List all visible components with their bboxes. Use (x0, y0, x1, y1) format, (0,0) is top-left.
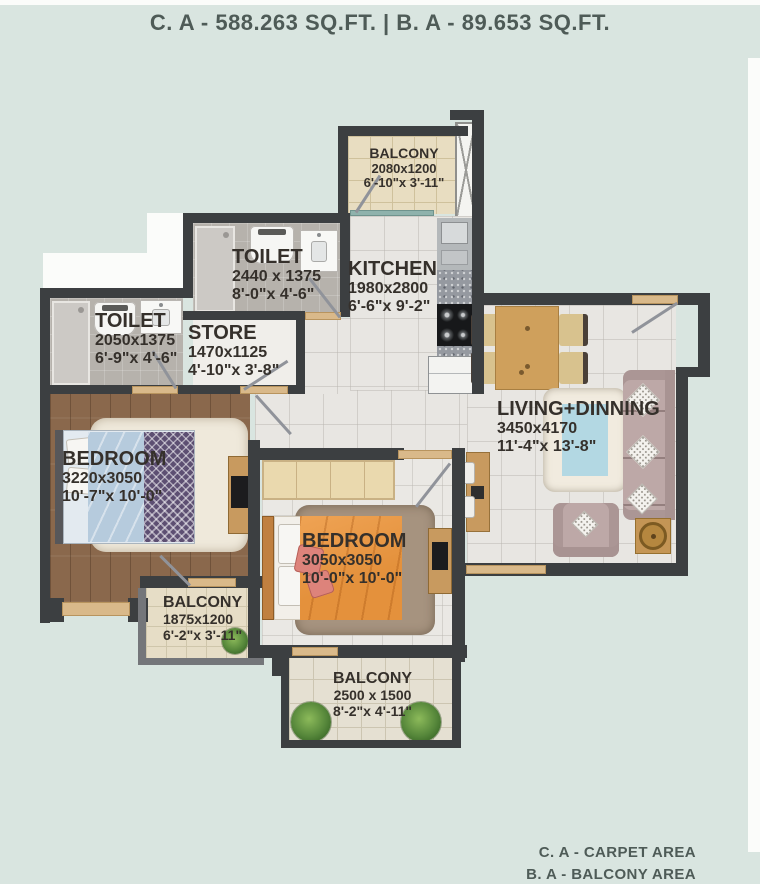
window (350, 210, 434, 216)
room-dim-mm: 2050x1375 (95, 332, 177, 350)
room-label-bedroom-left: BEDROOM 3220x3050 10'-7"x 10'-0" (62, 448, 166, 506)
room-name: TOILET (232, 246, 321, 268)
area-summary-text: C. A - 588.263 SQ.FT. | B. A - 89.653 SQ… (0, 10, 760, 36)
armchair-icon (553, 503, 619, 557)
room-name: BALCONY (163, 594, 242, 612)
shower-icon (195, 226, 235, 312)
sink-icon (437, 218, 472, 270)
room-dim-ft: 4'-10"x 3'-8" (188, 362, 279, 380)
white-edge-strip (748, 58, 760, 852)
room-label-living-dining: LIVING+DINNING 3450x4170 11'-4"x 13'-8" (497, 398, 660, 456)
side-table-icon (635, 518, 671, 554)
wall (472, 110, 484, 394)
room-label-balcony-bottom: BALCONY 2500 x 1500 8'-2"x 4'-11" (300, 670, 445, 719)
room-name: KITCHEN (348, 258, 437, 280)
room-dim-mm: 1875x1200 (163, 612, 242, 628)
room-dim-ft: 8'-0"x 4'-6" (232, 286, 321, 304)
wall (281, 655, 289, 745)
exterior-notch (43, 253, 149, 293)
room-dim-mm: 3450x4170 (497, 420, 660, 438)
window (62, 602, 130, 616)
legend-balcony-area: B. A - BALCONY AREA (526, 864, 696, 884)
room-dim-ft: 6'-6"x 9'-2" (348, 298, 437, 316)
white-top-strip (0, 0, 760, 5)
wall (250, 448, 404, 460)
kitchen-counter (437, 270, 472, 304)
entrance-door-sill (632, 295, 678, 304)
room-label-balcony-left: BALCONY 1875x1200 6'-2"x 3'-11" (163, 594, 242, 643)
wall (183, 311, 305, 320)
room-dim-mm: 2440 x 1375 (232, 268, 321, 286)
window (466, 565, 546, 574)
room-dim-ft: 11'-4"x 13'-8" (497, 438, 660, 456)
room-label-kitchen: KITCHEN 1980x2800 6'-6"x 9'-2" (348, 258, 437, 316)
room-dim-ft: 6'-10"x 3'-11" (350, 176, 458, 191)
wardrobe-icon (262, 460, 395, 500)
room-label-balcony-top: BALCONY 2080x1200 6'-10"x 3'-11" (350, 146, 458, 191)
room-name: BALCONY (300, 670, 445, 688)
door-sill (398, 450, 452, 459)
room-dim-mm: 3050x3050 (302, 552, 406, 570)
sofa-pillow (626, 483, 657, 514)
room-dim-ft: 10'-0"x 10'-0" (302, 570, 406, 588)
fridge-icon (428, 356, 474, 394)
room-label-toilet-left: TOILET 2050x1375 6'-9"x 4'-6" (95, 310, 177, 368)
wall (296, 311, 305, 391)
hall-passage (255, 390, 480, 455)
hall-passage (303, 318, 350, 394)
wall (40, 288, 193, 298)
dining-chair-icon (559, 314, 588, 346)
room-dim-ft: 6'-2"x 3'-11" (163, 628, 242, 644)
room-name: BEDROOM (302, 530, 406, 552)
room-dim-ft: 6'-9"x 4'-6" (95, 350, 177, 368)
room-label-toilet-top: TOILET 2440 x 1375 8'-0"x 4'-6" (232, 246, 321, 304)
room-dim-mm: 3220x3050 (62, 470, 166, 488)
room-name: BALCONY (350, 146, 458, 162)
room-name: BEDROOM (62, 448, 166, 470)
armchair-pillow (572, 511, 599, 538)
door-sill (132, 386, 178, 394)
wall (40, 288, 50, 623)
tv-icon (432, 542, 448, 570)
wall (183, 213, 350, 223)
wall (138, 658, 264, 665)
room-dim-mm: 2500 x 1500 (300, 688, 445, 704)
wall (248, 440, 260, 660)
dining-table-icon (495, 306, 559, 390)
room-name: LIVING+DINNING (497, 398, 660, 420)
stove-icon (437, 304, 472, 346)
wall (138, 588, 146, 660)
wall (452, 655, 461, 745)
wall (338, 126, 348, 220)
door-sill (188, 578, 236, 587)
room-label-store: STORE 1470x1125 4'-10"x 3'-8" (188, 322, 279, 380)
wall (338, 126, 468, 136)
wall (281, 740, 461, 748)
room-dim-mm: 1980x2800 (348, 280, 437, 298)
legend: C. A - CARPET AREA B. A - BALCONY AREA (526, 842, 696, 884)
dining-chair-icon (559, 352, 588, 384)
room-name: TOILET (95, 310, 177, 332)
wall (40, 598, 64, 622)
room-name: STORE (188, 322, 279, 344)
room-label-bedroom-mid: BEDROOM 3050x3050 10'-0"x 10'-0" (302, 530, 406, 588)
room-dim-ft: 10'-7"x 10'-0" (62, 488, 166, 506)
wall (676, 367, 688, 576)
room-dim-mm: 1470x1125 (188, 344, 279, 362)
exterior-notch (147, 213, 185, 293)
wall (698, 293, 710, 377)
wall (452, 448, 465, 662)
door-sill (292, 647, 338, 656)
wall (183, 213, 193, 298)
floor-plan: C. A - 588.263 SQ.FT. | B. A - 89.653 SQ… (0, 0, 760, 884)
bed-headboard (262, 516, 274, 620)
room-dim-ft: 8'-2"x 4'-11" (300, 704, 445, 720)
shower-icon (52, 301, 90, 385)
legend-carpet-area: C. A - CARPET AREA (526, 842, 696, 864)
room-dim-mm: 2080x1200 (350, 162, 458, 177)
